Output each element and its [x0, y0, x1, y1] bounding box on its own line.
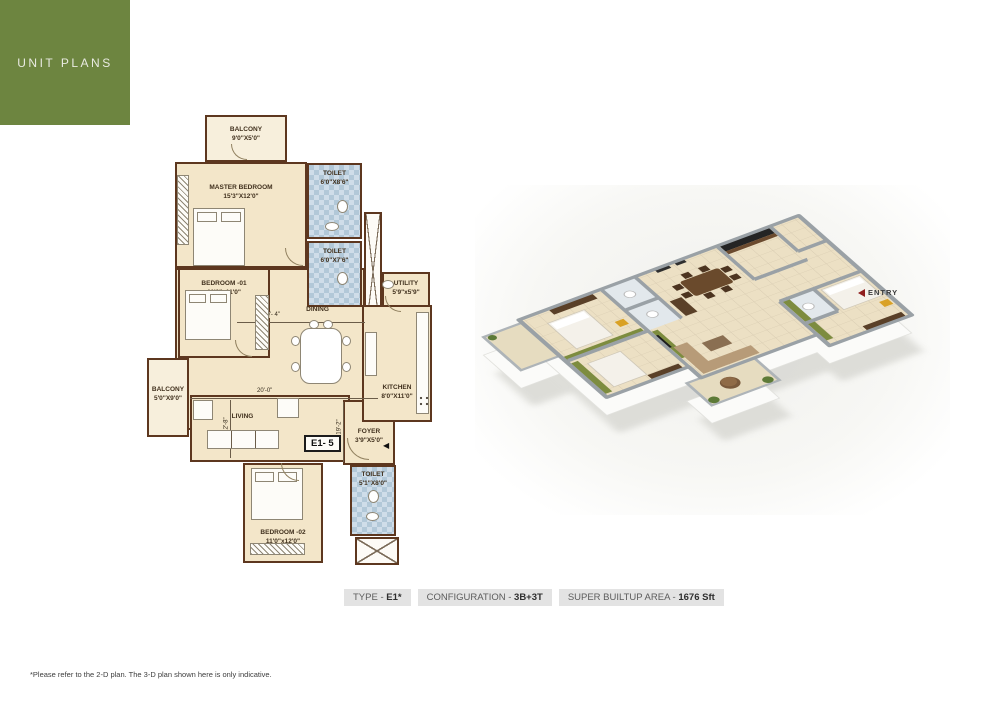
spec-area-value: 1676 Sft [678, 592, 714, 603]
stove-icon [418, 395, 430, 407]
sofa-icon [207, 430, 279, 449]
toilet-common-label: TOILET 6'0"X7'6" [309, 248, 360, 266]
pillow-icon [197, 212, 217, 222]
spec-builtup-area: SUPER BUILTUP AREA - 1676 Sft [559, 589, 724, 606]
kitchen-sink-counter-icon [365, 332, 377, 376]
spec-config-value: 3B+3T [514, 592, 543, 603]
dim-living-width: 20'-0" [255, 388, 274, 394]
wardrobe-icon [250, 543, 305, 555]
basin-icon [325, 222, 339, 231]
wc-icon [368, 490, 379, 503]
toilet-bed2-label: TOILET 5'1"X8'0" [352, 471, 394, 489]
balcony-top-label: BALCONY 9'0"X5'0" [207, 126, 285, 144]
floor-plan-2d: FOYER 3'9"X5'0" BALCONY 9'0"X5'0" MASTER… [85, 100, 447, 582]
unit-number-badge: E1- 5 [304, 435, 341, 452]
armchair-icon [277, 398, 299, 418]
dimline-hall-depth [343, 402, 344, 462]
sofa-divider [231, 431, 232, 448]
chair-icon [291, 336, 300, 346]
floor-plan-3d [478, 178, 948, 488]
spec-area-label: SUPER BUILTUP AREA - [568, 592, 679, 603]
toilet-master-label: TOILET 6'0"X8'6" [309, 170, 360, 188]
wc-icon [337, 200, 348, 213]
spec-type-label: TYPE - [353, 592, 386, 603]
brochure-page: UNIT PLANS FOYER 3'9"X5'0" BALCONY 9'0"X… [0, 0, 1000, 714]
pillow-icon [221, 212, 241, 222]
room-toilet-common: TOILET 6'0"X7'6" [307, 241, 362, 307]
pillow-icon [210, 294, 227, 303]
master-bedroom-label: MASTER BEDROOM 15'3"X12'0" [177, 184, 305, 202]
chair-icon [309, 320, 319, 329]
stair-box [355, 537, 399, 565]
entry-label: ENTRY [868, 288, 898, 297]
spec-type-value: E1* [386, 592, 401, 603]
entry-marker: ENTRY [858, 288, 898, 297]
sofa-divider [255, 431, 256, 448]
entry-arrow-icon [858, 289, 865, 297]
spec-type: TYPE - E1* [344, 589, 411, 606]
dining-table-icon [300, 328, 342, 384]
chair-icon [291, 362, 300, 372]
dimline-living-depth [230, 400, 231, 458]
disclaimer-footnote: *Please refer to the 2-D plan. The 3-D p… [30, 670, 272, 679]
entry-arrow-icon: ◀ [383, 441, 389, 450]
pillow-icon [189, 294, 206, 303]
spec-bar: TYPE - E1* CONFIGURATION - 3B+3T SUPER B… [344, 589, 724, 606]
chair-icon [342, 362, 351, 372]
wc-icon [337, 272, 348, 285]
spec-config-label: CONFIGURATION - [427, 592, 514, 603]
chair-icon [323, 320, 333, 329]
dining-label: DINING [290, 306, 345, 313]
spec-configuration: CONFIGURATION - 3B+3T [418, 589, 552, 606]
wardrobe-icon [177, 175, 189, 245]
room-balcony-left: BALCONY 5'0"X9'0" [147, 358, 189, 437]
armchair-icon [193, 400, 213, 420]
utility-sink-icon [382, 280, 394, 289]
pillow-icon [255, 472, 274, 482]
dim-hall-depth: 19'-2" [337, 417, 343, 436]
page-title: UNIT PLANS [0, 56, 130, 70]
chair-icon [342, 336, 351, 346]
wardrobe-icon [255, 295, 269, 350]
balcony-left-label: BALCONY 5'0"X9'0" [149, 386, 187, 404]
basin-icon [366, 512, 379, 521]
